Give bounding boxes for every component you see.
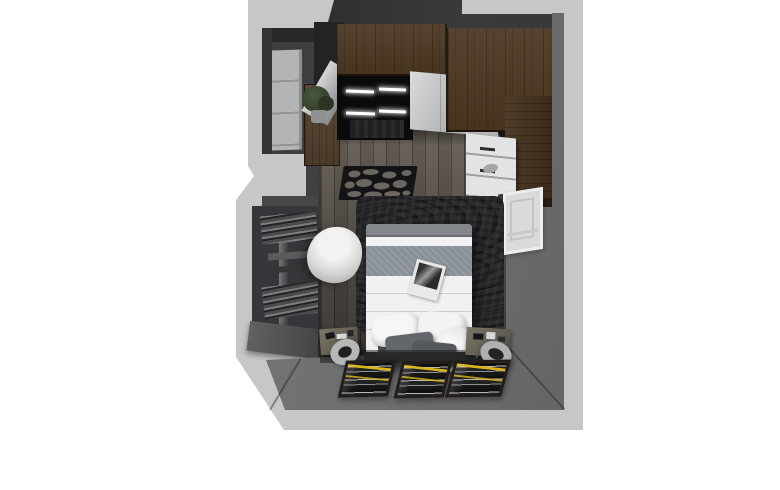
framed-poster (338, 359, 397, 397)
entry-door (272, 49, 302, 150)
decorative-cutout-mat (338, 166, 417, 200)
nightstand-decor (473, 333, 483, 340)
nightstand-decor (325, 332, 335, 340)
bedroom-floorplan-render (0, 0, 780, 490)
plant-pot (311, 110, 327, 123)
nightstand-decor (347, 330, 353, 336)
right-wall-window (503, 187, 543, 255)
framed-poster (394, 361, 453, 399)
wardrobe-upper-cabinet-left (337, 24, 447, 76)
nightstand-decor (486, 332, 495, 339)
radiator-slats-top (260, 212, 318, 245)
drawer-handle (480, 147, 495, 152)
entry-niche-side-face (262, 28, 272, 154)
potted-plant-leaf (318, 96, 334, 111)
magazine-cover (414, 262, 443, 289)
hanging-clothes (350, 120, 404, 138)
bed-foot-edge (366, 224, 472, 237)
framed-poster (445, 360, 511, 398)
